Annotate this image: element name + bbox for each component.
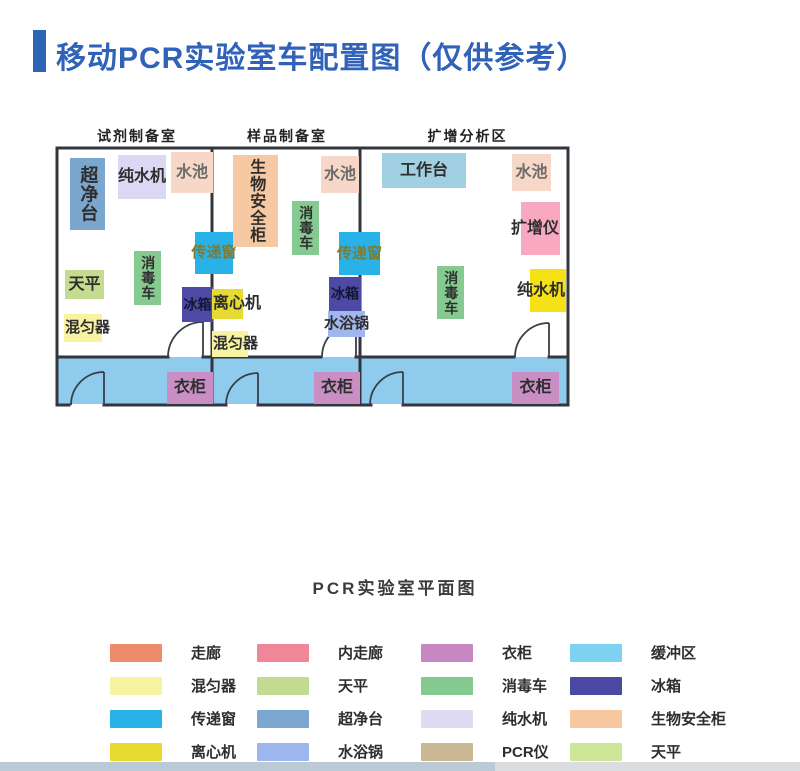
- floorplan-walls-layer: [0, 0, 800, 430]
- equipment-disinfection-cart-1: 消毒车: [134, 251, 161, 305]
- equipment-balance-1: 天平: [65, 270, 104, 299]
- legend-item-disinfection-cart: 消毒车: [421, 669, 570, 702]
- equipment-sink-3: 水池: [512, 154, 551, 191]
- equipment-label: 消毒车: [298, 206, 313, 251]
- equipment-disinfection-cart-3: 消毒车: [437, 266, 464, 319]
- legend-swatch-mixer: [110, 677, 162, 695]
- equipment-water-bath: 水浴锅: [328, 311, 365, 337]
- equipment-label: 工作台: [400, 162, 448, 180]
- legend-item-inner-corridor: 内走廊: [257, 636, 421, 669]
- equipment-biosafety-cabinet: 生物安全柜: [233, 155, 278, 247]
- legend-swatch-disinfection-cart: [421, 677, 473, 695]
- legend-item-biosafety-cabinet: 生物安全柜: [570, 702, 780, 735]
- equipment-label: 水池: [515, 164, 547, 182]
- legend-swatch-balance: [257, 677, 309, 695]
- equipment-label: 水池: [176, 164, 208, 182]
- equipment-label: 纯水机: [118, 168, 166, 186]
- room-label-amplification: 扩增分析区: [390, 126, 545, 144]
- equipment-pure-water-machine-1: 纯水机: [118, 155, 166, 199]
- legend-label: 冰箱: [651, 675, 681, 696]
- legend-label: 天平: [338, 675, 368, 696]
- equipment-label: 传递窗: [191, 245, 236, 262]
- legend-swatch-clean-bench: [257, 710, 309, 728]
- legend-swatch-pure-water-machine: [421, 710, 473, 728]
- equipment-label: 混匀器: [213, 336, 258, 353]
- equipment-wardrobe-2: 衣柜: [314, 372, 360, 404]
- legend-item-pure-water-machine: 纯水机: [421, 702, 570, 735]
- room-label-sample-prep: 样品制备室: [212, 126, 362, 144]
- equipment-disinfection-cart-2: 消毒车: [292, 201, 319, 255]
- legend-swatch-pcr-instrument: [421, 743, 473, 761]
- equipment-label: 消毒车: [140, 256, 155, 301]
- equipment-label: 纯水机: [517, 282, 565, 300]
- equipment-label: 冰箱: [184, 297, 212, 312]
- equipment-label: 离心机: [213, 295, 261, 313]
- equipment-label: 生物安全柜: [247, 159, 265, 244]
- legend-label: 衣柜: [502, 642, 532, 663]
- equipment-mixer-2: 混匀器: [212, 331, 248, 357]
- legend-swatch-centrifuge-l: [110, 743, 162, 761]
- legend-item-clean-bench: 超净台: [257, 702, 421, 735]
- equipment-label: 水池: [324, 166, 356, 184]
- legend-swatch-water-bath-l: [257, 743, 309, 761]
- legend-item-corridor: 走廊: [110, 636, 257, 669]
- legend: 走廊内走廊衣柜缓冲区混匀器天平消毒车冰箱传递窗超净台纯水机生物安全柜离心机水浴锅…: [110, 636, 780, 768]
- equipment-sink-2: 水池: [321, 156, 359, 193]
- legend-swatch-fridge: [570, 677, 622, 695]
- equipment-fridge-1: 冰箱: [182, 287, 213, 322]
- legend-item-balance: 天平: [257, 669, 421, 702]
- legend-label: PCR仪: [502, 741, 549, 762]
- equipment-centrifuge: 离心机: [212, 289, 243, 319]
- equipment-sink-1: 水池: [171, 152, 213, 193]
- legend-item-wardrobe: 衣柜: [421, 636, 570, 669]
- equipment-label: 消毒车: [443, 270, 458, 315]
- legend-label: 离心机: [191, 741, 236, 762]
- legend-swatch-transfer-window: [110, 710, 162, 728]
- equipment-wardrobe-1: 衣柜: [167, 372, 213, 404]
- floorplan-diagram: 试剂制备室 样品制备室 扩增分析区 超净台纯水机水池传递窗消毒车天平冰箱混匀器生…: [0, 0, 800, 430]
- legend-label: 超净台: [338, 708, 383, 729]
- legend-item-transfer-window: 传递窗: [110, 702, 257, 735]
- equipment-clean-bench: 超净台: [70, 158, 105, 230]
- legend-item-buffer-zone: 缓冲区: [570, 636, 780, 669]
- equipment-mixer-1: 混匀器: [64, 314, 102, 342]
- room-label-reagent-prep: 试剂制备室: [57, 126, 217, 144]
- legend-swatch-corridor: [110, 644, 162, 662]
- corridor-area: [59, 357, 567, 404]
- legend-label: 天平: [651, 741, 681, 762]
- equipment-label: 衣柜: [519, 379, 551, 397]
- legend-label: 走廊: [191, 642, 221, 663]
- legend-swatch-inner-corridor: [257, 644, 309, 662]
- equipment-workbench: 工作台: [382, 153, 466, 188]
- equipment-label: 冰箱: [331, 286, 359, 301]
- legend-label: 生物安全柜: [651, 708, 726, 729]
- equipment-label: 天平: [68, 276, 100, 294]
- equipment-label: 水浴锅: [324, 316, 369, 333]
- legend-label: 水浴锅: [338, 741, 383, 762]
- legend-swatch-balance-2: [570, 743, 622, 761]
- legend-title: PCR实验室平面图: [0, 574, 790, 599]
- legend-label: 消毒车: [502, 675, 547, 696]
- legend-swatch-wardrobe: [421, 644, 473, 662]
- equipment-label: 衣柜: [321, 379, 353, 397]
- equipment-label: 扩增仪: [511, 220, 559, 238]
- legend-label: 内走廊: [338, 642, 383, 663]
- page: 移动PCR实验室车配置图（仅供参考）: [0, 0, 800, 771]
- legend-label: 混匀器: [191, 675, 236, 696]
- equipment-fridge-2: 冰箱: [329, 277, 361, 311]
- legend-label: 缓冲区: [651, 642, 696, 663]
- legend-item-fridge: 冰箱: [570, 669, 780, 702]
- legend-label: 纯水机: [502, 708, 547, 729]
- legend-item-mixer: 混匀器: [110, 669, 257, 702]
- equipment-transfer-window-2: 传递窗: [339, 232, 380, 275]
- equipment-transfer-window-1: 传递窗: [195, 232, 233, 274]
- equipment-label: 超净台: [78, 166, 98, 223]
- equipment-pure-water-machine-2: 纯水机: [530, 269, 566, 312]
- legend-swatch-biosafety-cabinet: [570, 710, 622, 728]
- equipment-label: 混匀器: [65, 320, 110, 337]
- legend-swatch-buffer-zone: [570, 644, 622, 662]
- equipment-label: 传递窗: [337, 245, 382, 262]
- equipment-amplifier: 扩增仪: [521, 202, 560, 255]
- equipment-wardrobe-3: 衣柜: [512, 372, 559, 404]
- equipment-label: 衣柜: [174, 379, 206, 397]
- legend-label: 传递窗: [191, 708, 236, 729]
- horizontal-scrollbar[interactable]: [0, 762, 800, 771]
